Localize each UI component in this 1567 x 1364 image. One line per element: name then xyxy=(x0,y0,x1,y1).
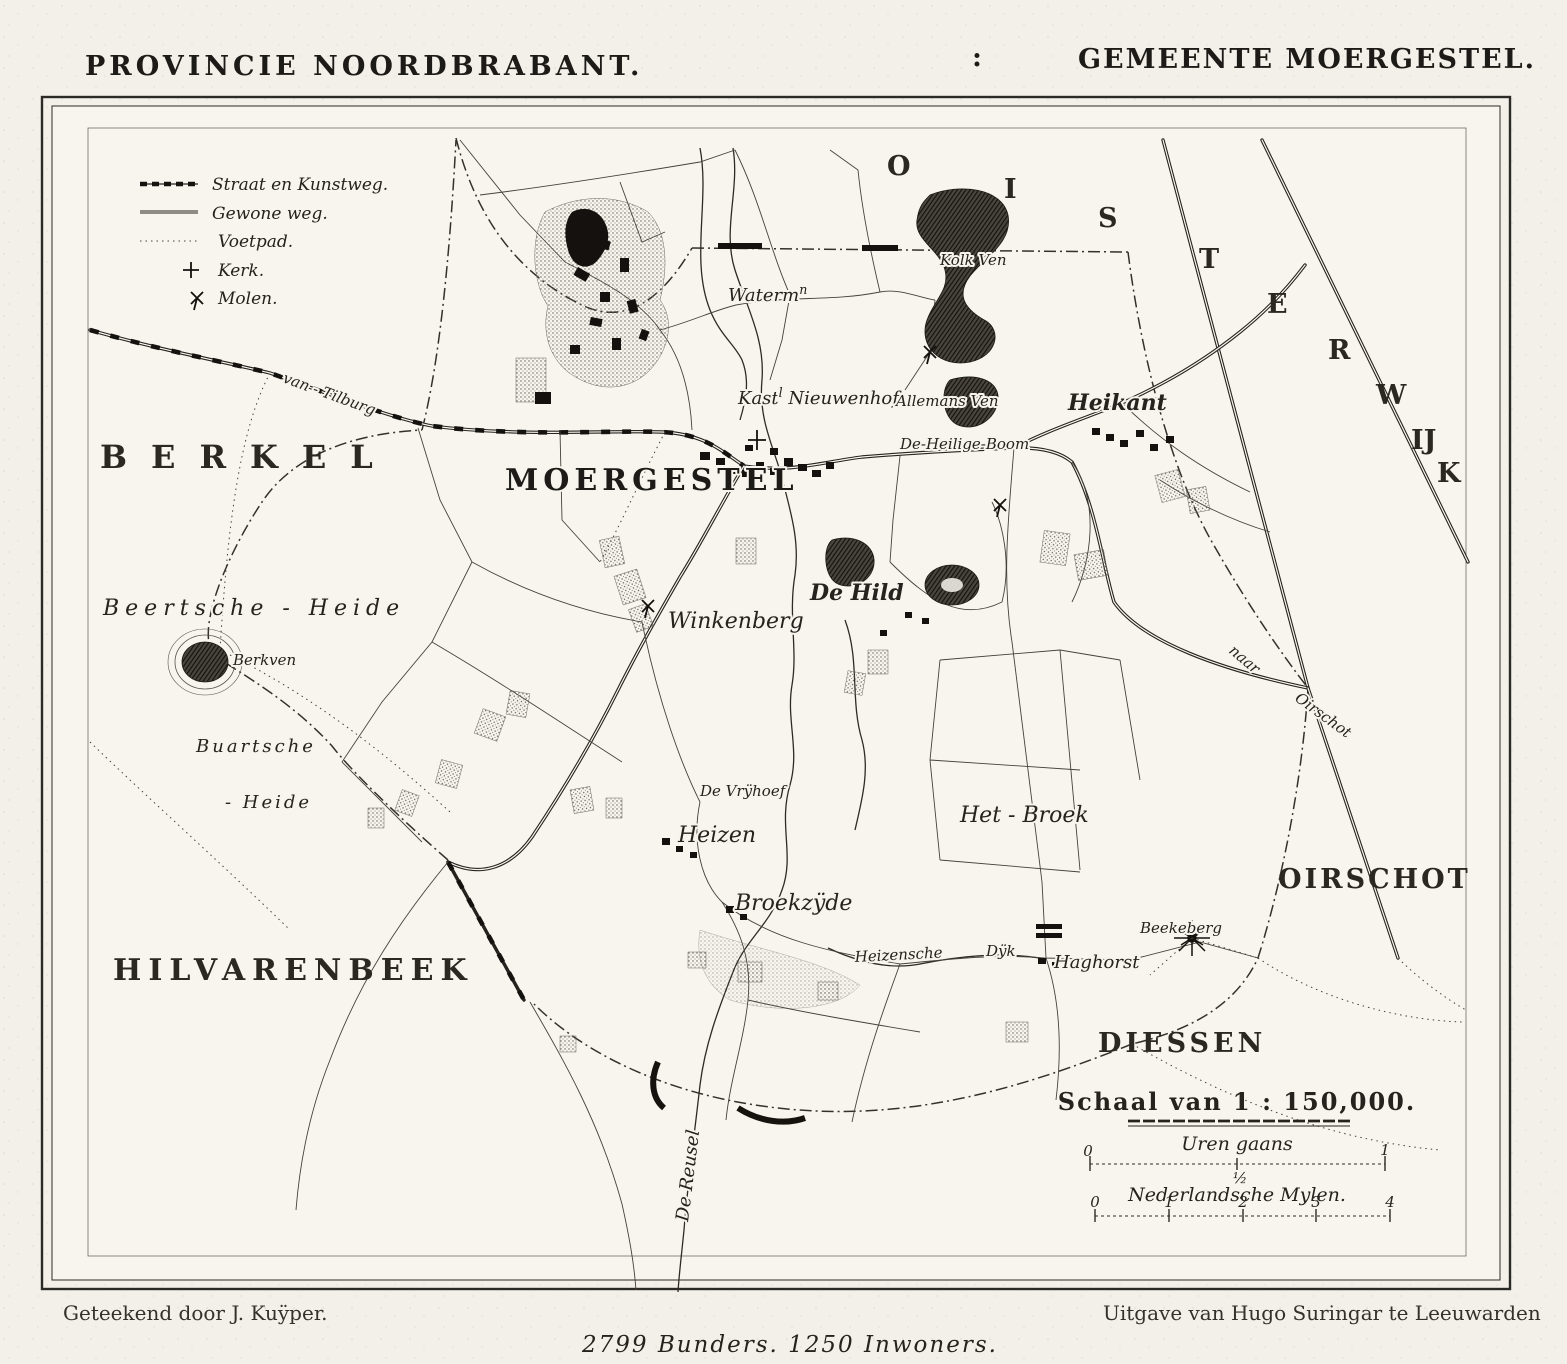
label-broekzijde: Broekzÿde xyxy=(734,891,852,916)
region-hilvarenbeek: HILVARENBEEK xyxy=(113,953,474,988)
footer-publisher: Uitgave van Hugo Suringar te Leeuwarden xyxy=(1103,1301,1541,1325)
label-het-broek: Het - Broek xyxy=(959,803,1089,828)
map-sheet: PROVINCIE NOORDBRABANT. : GEMEENTE MOERG… xyxy=(0,0,1567,1364)
label-moergestel: MOERGESTEL xyxy=(505,463,799,498)
scale-title: Schaal van 1 : 150,000. xyxy=(1058,1087,1416,1116)
label-beekeberg: Beekeberg xyxy=(1139,919,1222,937)
label-buartsche: Buartsche xyxy=(195,736,316,757)
legend-label-gewoneweg: Gewone weg. xyxy=(212,204,328,224)
label-beertsche-heide: Beertsche - Heide xyxy=(102,596,405,621)
uren-tick-0: 0 xyxy=(1083,1142,1093,1160)
footer-author: Geteekend door J. Kuÿper. xyxy=(63,1301,328,1325)
label-heikant: Heikant xyxy=(1067,390,1167,416)
oisterwijk-letter: I xyxy=(1004,174,1017,205)
mijlen-tick: 0 xyxy=(1090,1193,1100,1211)
label-kasteel-nieuwenhof: Kastl Nieuwenhof xyxy=(737,385,902,410)
footer-statistics: 2799 Bunders. 1250 Inwoners. xyxy=(581,1332,998,1358)
region-diessen: DIESSEN xyxy=(1098,1028,1266,1059)
scale-uren-label: Uren gaans xyxy=(1181,1133,1293,1155)
label-de-vrijhoef: De Vrÿhoef xyxy=(699,782,788,800)
label-berkven: Berkven xyxy=(232,651,296,669)
separator-mark: : xyxy=(972,42,982,73)
legend-label-voetpad: Voetpad. xyxy=(218,232,293,252)
oisterwijk-letter: W xyxy=(1375,380,1407,411)
label-allemans-ven: Allemans Ven xyxy=(894,392,999,410)
mijlen-tick: 1 xyxy=(1164,1193,1174,1211)
oisterwijk-letter: E xyxy=(1267,289,1288,320)
label-watermolen: Watermn xyxy=(728,282,807,307)
oisterwijk-letter: K xyxy=(1437,458,1462,489)
oisterwijk-letter: R xyxy=(1328,335,1351,366)
mijlen-tick: 4 xyxy=(1384,1193,1395,1211)
label-kolk-ven: Kolk Ven xyxy=(939,251,1006,269)
label-haghorst: Haghorst xyxy=(1053,952,1140,973)
legend-label-kunstweg: Straat en Kunstweg. xyxy=(212,175,388,195)
label-de-hild: De Hild xyxy=(809,580,904,606)
label-de-heilige-boom: De-Heilige-Boom xyxy=(899,435,1029,453)
mijlen-tick: 3 xyxy=(1311,1193,1321,1211)
region-berkel: BERKEL xyxy=(100,438,397,476)
label-heizen: Heizen xyxy=(677,823,756,848)
label-winkenberg: Winkenberg xyxy=(668,609,804,634)
province-title: PROVINCIE NOORDBRABANT. xyxy=(85,51,643,82)
oisterwijk-letter: IJ xyxy=(1411,425,1436,456)
region-oirschot: OIRSCHOT xyxy=(1278,864,1471,895)
oisterwijk-letter: S xyxy=(1098,203,1118,234)
label-buartsche-heide: - Heide xyxy=(225,792,312,813)
legend-label-kerk: Kerk. xyxy=(217,261,264,281)
mijlen-tick: 2 xyxy=(1237,1193,1248,1211)
label-dijk: Dÿk xyxy=(985,942,1016,960)
legend-label-molen: Molen. xyxy=(217,289,278,309)
gemeente-title: GEMEENTE MOERGESTEL. xyxy=(1078,44,1536,75)
uren-tick-1: 1 xyxy=(1380,1141,1390,1159)
oisterwijk-letter: T xyxy=(1199,244,1219,275)
oisterwijk-letter: O xyxy=(887,151,911,182)
